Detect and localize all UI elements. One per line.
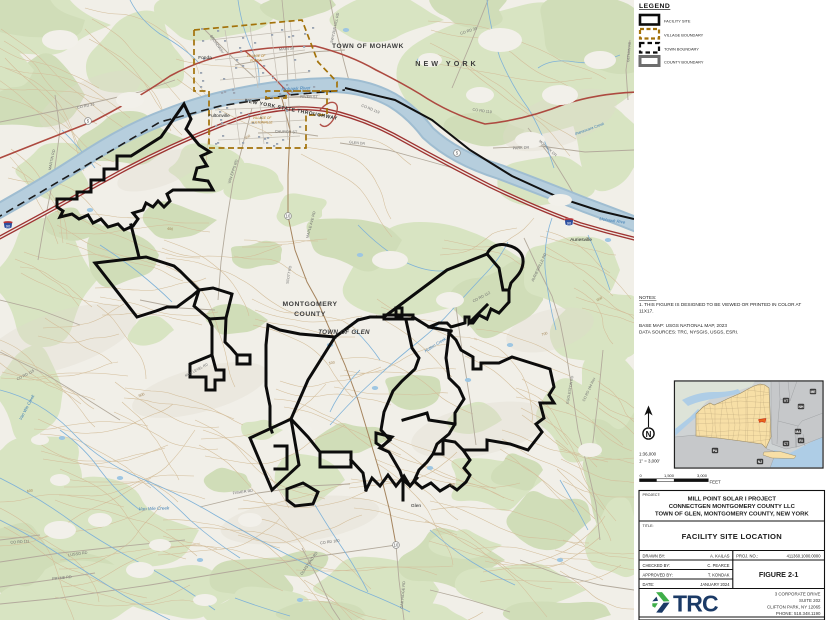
svg-text:Auriesville: Auriesville (570, 237, 592, 243)
svg-text:RI: RI (799, 439, 802, 443)
svg-text:FULTONVILLE: FULTONVILLE (251, 121, 273, 125)
svg-text:CHURCH ST: CHURCH ST (275, 130, 298, 135)
svg-text:SUITE 202: SUITE 202 (799, 598, 821, 603)
svg-text:COUNTY: COUNTY (294, 311, 326, 318)
svg-text:90: 90 (6, 224, 11, 229)
svg-text:PROJ. NO.:: PROJ. NO.: (736, 554, 758, 559)
svg-text:PROJECT:: PROJECT: (643, 493, 661, 497)
svg-text:CHECKED BY:: CHECKED BY: (643, 563, 671, 568)
svg-text:90: 90 (567, 221, 572, 226)
svg-text:TOWN OF GLEN, MONTGOMERY COUNT: TOWN OF GLEN, MONTGOMERY COUNTY, NEW YOR… (655, 512, 809, 518)
svg-text:A. KAILAS: A. KAILAS (710, 554, 730, 559)
svg-text:NH: NH (799, 405, 804, 409)
svg-text:11X17.: 11X17. (639, 309, 654, 314)
svg-text:NJ: NJ (758, 460, 762, 464)
svg-text:NEW YORK: NEW YORK (415, 59, 478, 68)
svg-text:TRC: TRC (673, 591, 718, 617)
svg-text:VILLAGE BOUNDARY: VILLAGE BOUNDARY (664, 33, 704, 38)
svg-text:LEGEND: LEGEND (639, 3, 670, 10)
svg-text:FACILITY SITE LOCATION: FACILITY SITE LOCATION (682, 532, 782, 541)
svg-text:MONTGOMERY: MONTGOMERY (283, 301, 338, 308)
svg-text:Fonda: Fonda (198, 55, 212, 61)
svg-text:PA: PA (713, 449, 718, 453)
svg-text:ME: ME (810, 390, 816, 394)
svg-text:FEET: FEET (710, 480, 722, 485)
svg-text:C. PEARCE: C. PEARCE (707, 563, 729, 568)
svg-text:T. KONDAK: T. KONDAK (708, 573, 730, 578)
svg-text:CLIFTON PARK, NY 12065: CLIFTON PARK, NY 12065 (767, 605, 821, 610)
svg-text:1:36,000: 1:36,000 (639, 452, 657, 457)
svg-text:TOWN OF GLEN: TOWN OF GLEN (318, 329, 370, 336)
svg-text:3 CORPORATE DRIVE: 3 CORPORATE DRIVE (775, 592, 821, 597)
svg-text:FONDA: FONDA (250, 59, 261, 63)
svg-text:APPROVED BY:: APPROVED BY: (643, 573, 673, 578)
svg-text:1" = 3,000': 1" = 3,000' (639, 459, 660, 464)
svg-text:1,500: 1,500 (664, 473, 675, 478)
svg-text:VILLAGE OF: VILLAGE OF (247, 54, 267, 58)
svg-text:10: 10 (286, 214, 291, 219)
svg-text:DATE:: DATE: (643, 582, 655, 587)
svg-text:COUNTY BOUNDARY: COUNTY BOUNDARY (664, 60, 704, 65)
svg-text:TOWN OF MOHAWK: TOWN OF MOHAWK (332, 43, 404, 50)
svg-text:10: 10 (394, 543, 399, 548)
svg-text:CONNECTGEN MONTGOMERY COUNTY L: CONNECTGEN MONTGOMERY COUNTY LLC (669, 504, 796, 510)
svg-text:700: 700 (449, 483, 455, 488)
svg-text:NOTES:: NOTES: (639, 295, 656, 300)
svg-text:1. THIS FIGURE IS DESIGNED TO: 1. THIS FIGURE IS DESIGNED TO BE VIEWED … (639, 302, 801, 307)
svg-text:JANUARY 2024: JANUARY 2024 (700, 582, 730, 587)
svg-text:400: 400 (167, 227, 173, 232)
svg-text:FIGURE 2-1: FIGURE 2-1 (759, 570, 799, 579)
svg-text:DATA SOURCES: TRC, NYSGIS, USG: DATA SOURCES: TRC, NYSGIS, USGS, ESRI. (639, 330, 738, 335)
svg-text:N: N (646, 430, 652, 439)
svg-text:DRAWN BY:: DRAWN BY: (643, 554, 666, 559)
svg-text:3,000: 3,000 (697, 473, 708, 478)
svg-text:FACILITY SITE: FACILITY SITE (664, 19, 691, 24)
svg-text:411360.1000.0000: 411360.1000.0000 (787, 554, 822, 559)
svg-text:MA: MA (795, 430, 801, 434)
svg-text:PHONE: 518.348.1190: PHONE: 518.348.1190 (776, 611, 821, 616)
svg-text:Fultonville: Fultonville (208, 113, 230, 119)
svg-text:BASE MAP: USGS NATIONAL MAP, 2: BASE MAP: USGS NATIONAL MAP, 2023 (639, 323, 727, 328)
svg-text:RIVER ST: RIVER ST (300, 95, 318, 100)
svg-text:Glen: Glen (411, 503, 421, 509)
svg-text:TITLE:: TITLE: (643, 524, 654, 528)
svg-text:TOWN BOUNDARY: TOWN BOUNDARY (664, 47, 699, 52)
svg-text:VILLAGE OF: VILLAGE OF (253, 116, 273, 120)
svg-text:MILL POINT SOLAR I PROJECT: MILL POINT SOLAR I PROJECT (688, 497, 777, 503)
